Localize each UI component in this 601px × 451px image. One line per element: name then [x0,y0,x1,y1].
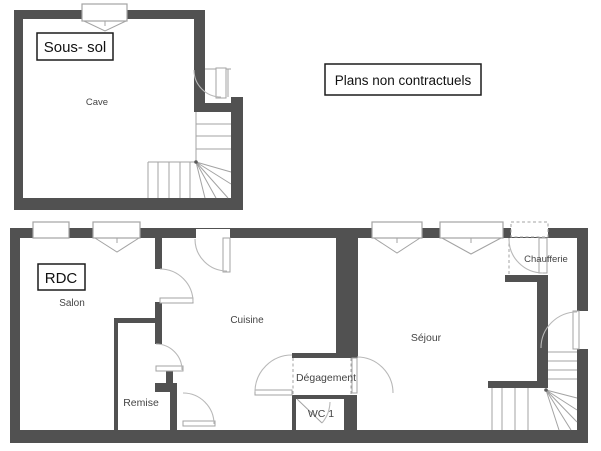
basement-stairs-winder [196,162,231,198]
chaufferie-top-opening [511,222,548,237]
salon-window-2 [93,222,140,238]
sejour-window-2-casement-icon [442,238,501,254]
basement-stairs-newel [194,160,198,164]
room-label-sejour: Séjour [411,332,442,344]
salon-window-casement-icon [95,238,139,252]
front-door-swing-arc [195,239,227,271]
ground-floor-plan: RDC Salon Cuisine Séjour Remise Dégageme… [10,222,589,443]
remise-south-door-swing-arc [183,393,214,424]
room-label-remise: Remise [123,397,159,409]
basement-door-leaf [216,68,226,98]
note-label: Plans non contractuels [335,73,472,88]
sejour-window-2 [440,222,503,238]
room-label-wc: WC 1 [308,408,334,420]
basement-stairs-treads [158,124,231,198]
floor-plans-image: Sous- sol Cave Plans non contractuels [0,0,601,451]
basement-plan: Sous- sol Cave [14,4,243,210]
room-label-cave: Cave [86,97,108,108]
ground-stairs-winder [546,390,577,430]
front-door-gap [196,229,230,238]
remise-north-door-leaf [156,366,183,371]
sejour-window-1-casement-icon [374,238,420,253]
ground-floor-stairs [492,352,577,430]
ground-stairs-newel [544,388,548,392]
sejour-east-door-leaf [573,311,579,349]
remise-south-door-leaf [183,421,215,426]
basement-window-casement-icon [84,21,126,31]
front-door-leaf [223,238,230,272]
basement-stairs-outline [148,112,196,198]
salon-door-swing-arc [160,269,193,302]
room-label-cuisine: Cuisine [230,315,264,326]
degagement-west-door-leaf [255,390,292,395]
basement-title: Sous- sol [44,39,107,56]
basement-window [82,4,127,21]
room-label-chaufferie: Chaufferie [524,254,568,265]
degagement-west-door-swing-arc [255,355,292,392]
salon-window-1 [33,222,69,238]
salon-door-leaf [160,298,193,303]
floor-plan-page: Sous- sol Cave Plans non contractuels [0,0,601,451]
degagement-east-door-swing-arc [357,357,393,393]
basement-stairs [148,112,231,198]
ground-floor-walls [10,228,588,443]
room-label-salon: Salon [59,298,85,309]
note: Plans non contractuels [325,64,481,95]
sejour-window-1 [372,222,422,238]
ground-title: RDC [45,270,78,287]
room-label-degagement: Dégagement [296,372,356,384]
